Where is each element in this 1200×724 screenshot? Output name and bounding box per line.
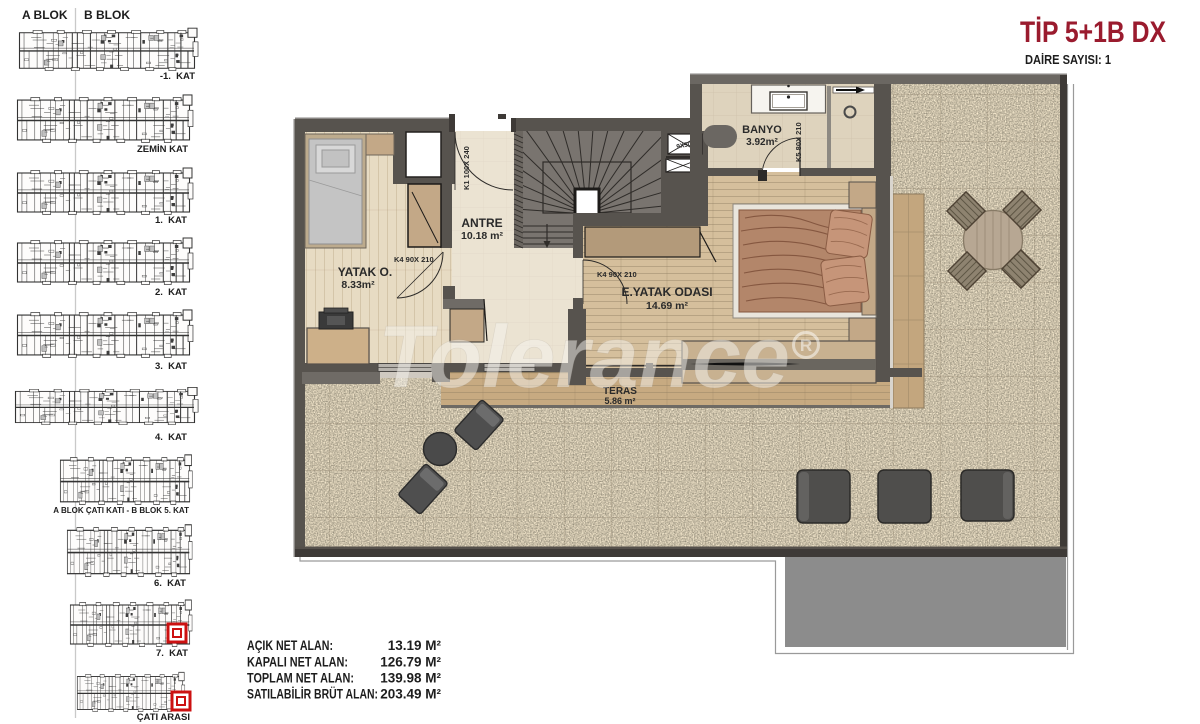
svg-text:K1 100X 240: K1 100X 240: [462, 146, 471, 190]
svg-text:13.19 M²: 13.19 M²: [388, 638, 442, 653]
svg-text:A BLOK ÇATI KATI - B BLOK 5. K: A BLOK ÇATI KATI - B BLOK 5. KAT: [53, 506, 189, 515]
svg-text:K4 90X 210: K4 90X 210: [597, 270, 637, 279]
svg-text:Tolerance: Tolerance: [378, 307, 790, 406]
svg-text:ANTRE: ANTRE: [461, 216, 502, 230]
svg-text:8.33m²: 8.33m²: [341, 279, 375, 291]
svg-text:-1. KAT: -1. KAT: [160, 71, 195, 82]
svg-text:K5 80X 210: K5 80X 210: [794, 122, 803, 162]
svg-text:3. KAT: 3. KAT: [155, 361, 187, 372]
svg-text:KAPALI NET ALAN:: KAPALI NET ALAN:: [247, 655, 348, 670]
svg-text:3.92m²: 3.92m²: [746, 137, 778, 148]
svg-text:B BLOK: B BLOK: [84, 8, 130, 22]
svg-text:2. KAT: 2. KAT: [155, 287, 187, 298]
svg-text:203.49 M²: 203.49 M²: [380, 687, 441, 702]
svg-text:6. KAT: 6. KAT: [154, 578, 186, 589]
svg-text:R: R: [800, 336, 812, 355]
svg-text:ÇATI ARASI: ÇATI ARASI: [137, 712, 190, 723]
svg-text:TOPLAM NET ALAN:: TOPLAM NET ALAN:: [247, 671, 354, 686]
svg-text:126.79 M²: 126.79 M²: [380, 655, 441, 670]
svg-text:DAİRE SAYISI: 1: DAİRE SAYISI: 1: [1025, 52, 1111, 67]
svg-text:A BLOK: A BLOK: [22, 8, 68, 22]
svg-text:1. KAT: 1. KAT: [155, 215, 187, 226]
svg-text:7. KAT: 7. KAT: [156, 648, 188, 659]
svg-text:E.YATAK ODASI: E.YATAK ODASI: [621, 285, 712, 299]
svg-text:ZEMİN KAT: ZEMİN KAT: [137, 144, 188, 155]
svg-text:K4 90X 210: K4 90X 210: [394, 255, 434, 264]
svg-text:YATAK O.: YATAK O.: [338, 265, 392, 279]
svg-text:BANYO: BANYO: [742, 124, 782, 136]
svg-text:10.18 m²: 10.18 m²: [461, 230, 504, 242]
svg-text:TİP 5+1B DX: TİP 5+1B DX: [1020, 16, 1166, 49]
svg-text:AÇIK NET ALAN:: AÇIK NET ALAN:: [247, 638, 333, 653]
svg-text:SATILABİLİR BRÜT ALAN:: SATILABİLİR BRÜT ALAN:: [247, 687, 378, 702]
svg-text:4. KAT: 4. KAT: [155, 432, 187, 443]
svg-text:139.98 M²: 139.98 M²: [380, 671, 441, 686]
